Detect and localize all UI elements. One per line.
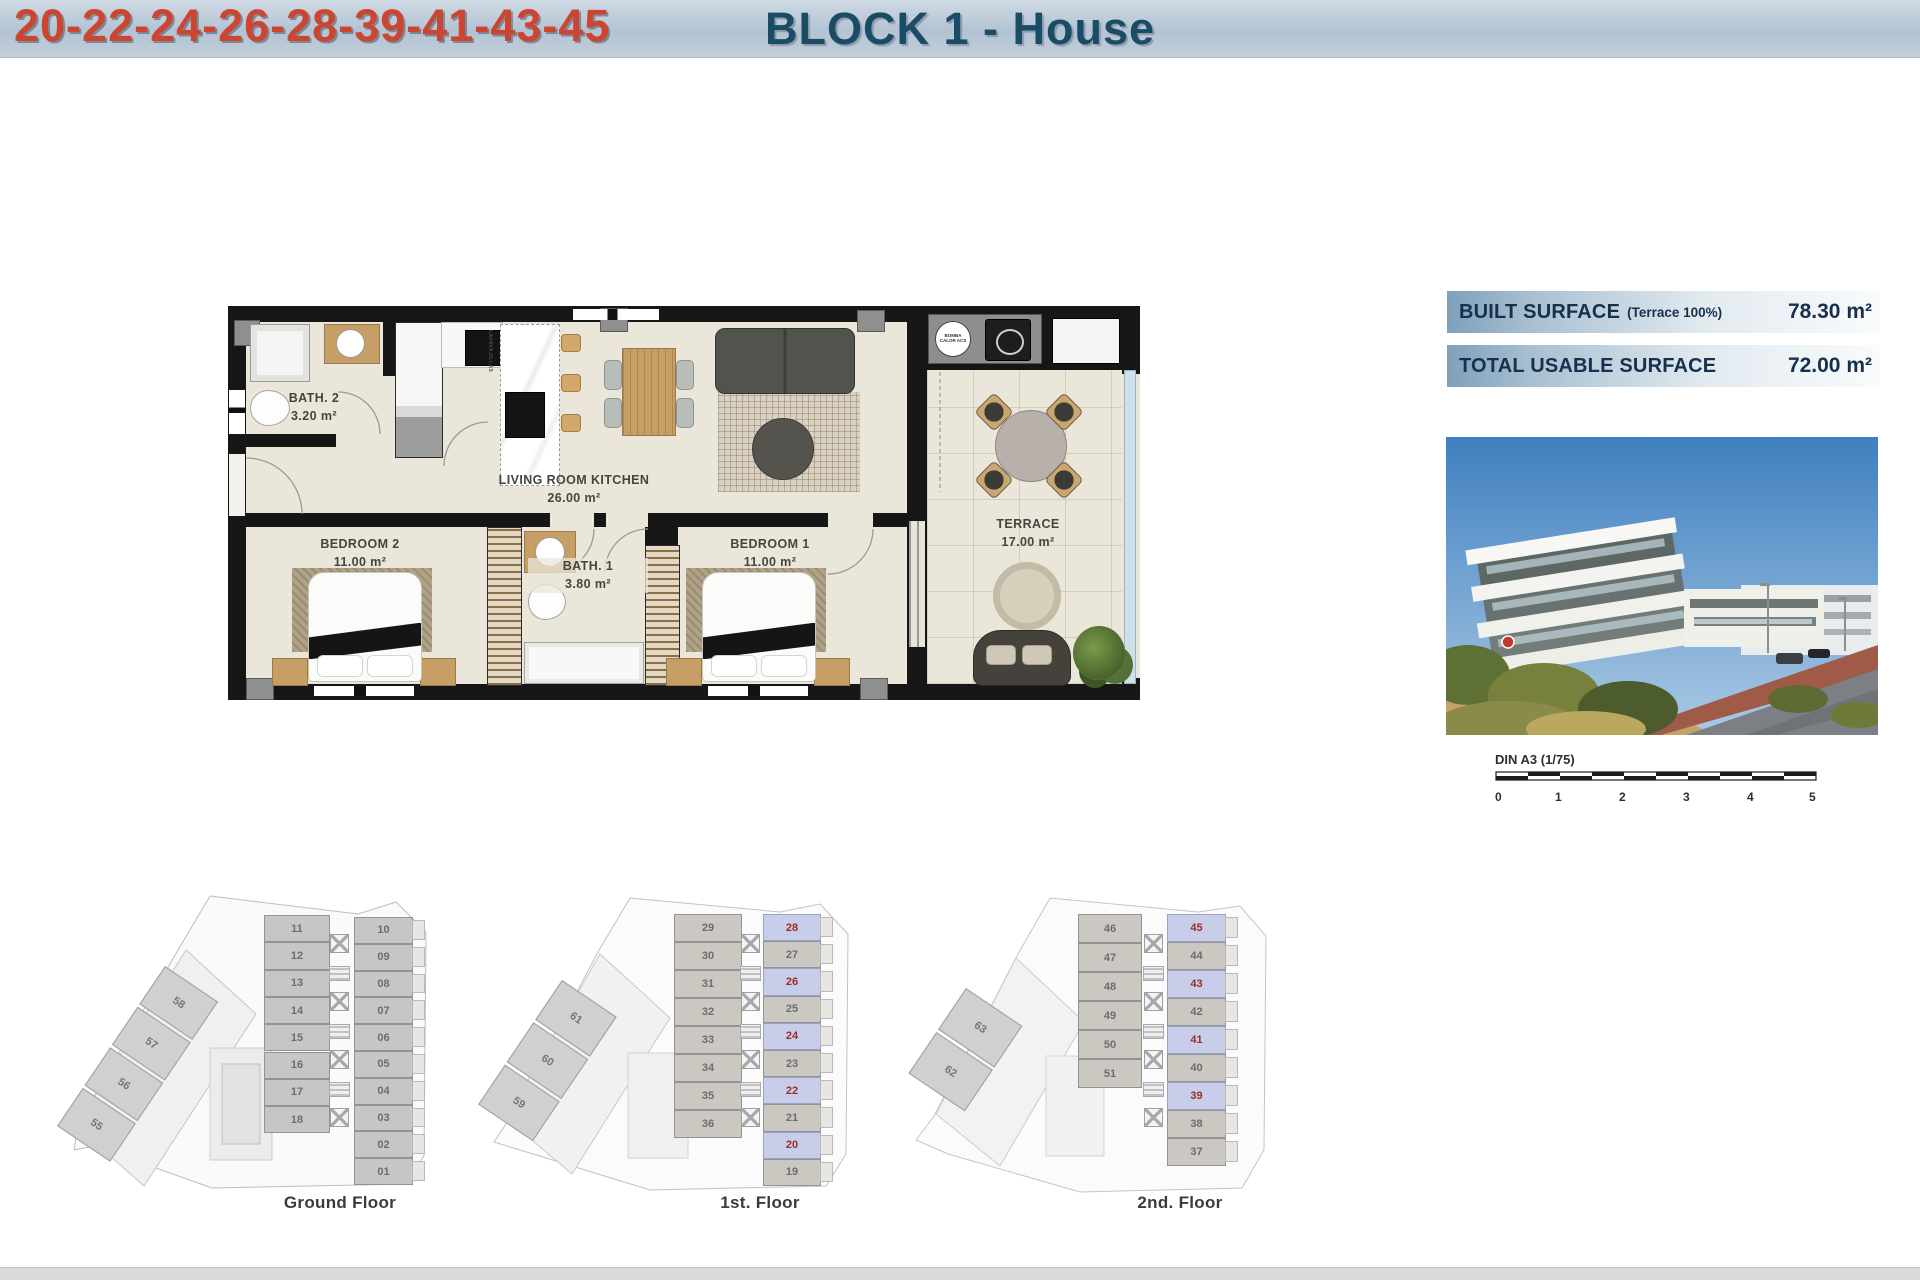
diagonal-units: 6362 — [907, 988, 1023, 1114]
elevator-icon — [1144, 1108, 1163, 1127]
balcony-notch — [820, 999, 833, 1019]
balcony-notch — [820, 917, 833, 937]
usable-surface-value: 72.00 m² — [1788, 354, 1880, 378]
page-title: BLOCK 1 - House20-22-24-26-28-39-41-43-4… — [765, 3, 1155, 55]
unit-01: 01 — [354, 1158, 413, 1185]
unit-20: 20 — [763, 1132, 821, 1159]
unit-33: 33 — [674, 1026, 742, 1054]
mini-plan-first-floor: 2930313233343536282726252423222120196160… — [480, 888, 870, 1223]
unit-29: 29 — [674, 914, 742, 942]
unit-31: 31 — [674, 970, 742, 998]
unit-41: 41 — [1167, 1026, 1226, 1054]
balcony-notch — [820, 1135, 833, 1155]
scale-ruler — [1495, 769, 1817, 785]
title-unit-numbers: 20-22-24-26-28-39-41-43-45 — [14, 0, 404, 335]
balcony-notch — [412, 1108, 425, 1128]
balcony-notch — [1225, 1113, 1238, 1134]
balcony-notch — [820, 1026, 833, 1046]
unit-19: 19 — [763, 1159, 821, 1186]
unit-cells: 2930313233343536282726252423222120196160… — [480, 888, 870, 1223]
room-area: 3.20 m² — [266, 408, 362, 426]
unit-43: 43 — [1167, 970, 1226, 998]
elevator-icon — [741, 992, 760, 1011]
tick: 0 — [1495, 790, 1502, 804]
unit-15: 15 — [264, 1024, 330, 1051]
elevator-icon — [741, 1108, 760, 1127]
room-name: BATH. 1 — [528, 558, 648, 576]
balcony-notch — [820, 1080, 833, 1100]
balcony-notch — [412, 1134, 425, 1154]
tick: 1 — [1555, 790, 1562, 804]
room-name: TERRACE — [958, 516, 1098, 534]
room-area: 11.00 m² — [285, 554, 435, 572]
room-label-bedroom2: BEDROOM 2 11.00 m² — [285, 536, 435, 571]
caption-second-floor: 2nd. Floor — [1070, 1193, 1290, 1213]
unit-11: 11 — [264, 915, 330, 942]
stairs-icon — [1143, 1082, 1164, 1097]
built-surface-row: BUILT SURFACE (Terrace 100%) 78.30 m² — [1447, 291, 1880, 333]
elevator-icon — [330, 934, 349, 953]
main-floor-plan: BOMBA CALOR ACS — [228, 306, 1140, 700]
footer-strip — [0, 1267, 1920, 1280]
built-surface-note: (Terrace 100%) — [1627, 305, 1722, 320]
balcony-notch — [1225, 973, 1238, 994]
balcony-notch — [412, 1027, 425, 1047]
room-label-terrace: TERRACE 17.00 m² — [958, 516, 1098, 551]
unit-07: 07 — [354, 997, 413, 1024]
unit-49: 49 — [1078, 1001, 1142, 1030]
balcony-notch — [1225, 1085, 1238, 1106]
built-surface-label: BUILT SURFACE — [1447, 301, 1620, 324]
unit-14: 14 — [264, 997, 330, 1024]
unit-35: 35 — [674, 1082, 742, 1110]
unit-13: 13 — [264, 970, 330, 997]
room-label-bath2: BATH. 2 3.20 m² — [266, 390, 362, 425]
room-area: 3.80 m² — [528, 576, 648, 594]
elevator-icon — [330, 1108, 349, 1127]
unit-46: 46 — [1078, 914, 1142, 943]
unit-48: 48 — [1078, 972, 1142, 1001]
unit-27: 27 — [763, 941, 821, 968]
unit-10: 10 — [354, 917, 413, 944]
balcony-notch — [412, 1000, 425, 1020]
usable-surface-label: TOTAL USABLE SURFACE — [1447, 355, 1716, 378]
unit-50: 50 — [1078, 1030, 1142, 1059]
unit-34: 34 — [674, 1054, 742, 1082]
room-name: BEDROOM 2 — [285, 536, 435, 554]
elevator-icon — [330, 1050, 349, 1069]
room-name: LIVING ROOM KITCHEN — [484, 472, 664, 490]
balcony-notch — [820, 944, 833, 964]
caption-ground-floor: Ground Floor — [230, 1193, 450, 1213]
balcony-notch — [1225, 945, 1238, 966]
unit-25: 25 — [763, 996, 821, 1023]
stairs-icon — [740, 1024, 761, 1039]
scale-label: DIN A3 (1/75) — [1495, 752, 1817, 767]
stairs-icon — [329, 1082, 350, 1097]
tick: 3 — [1683, 790, 1690, 804]
tick: 2 — [1619, 790, 1626, 804]
stairs-icon — [740, 966, 761, 981]
unit-30: 30 — [674, 942, 742, 970]
unit-23: 23 — [763, 1050, 821, 1077]
unit-24: 24 — [763, 1023, 821, 1050]
unit-06: 06 — [354, 1024, 413, 1051]
balcony-notch — [820, 1107, 833, 1127]
tick: 5 — [1809, 790, 1816, 804]
unit-26: 26 — [763, 968, 821, 995]
unit-38: 38 — [1167, 1110, 1226, 1138]
balcony-notch — [412, 1054, 425, 1074]
unit-51: 51 — [1078, 1059, 1142, 1088]
balcony-notch — [1225, 1057, 1238, 1078]
balcony-notch — [1225, 917, 1238, 938]
room-label-bedroom1: BEDROOM 1 11.00 m² — [695, 536, 845, 571]
balcony-notch — [412, 1161, 425, 1181]
balcony-notch — [412, 920, 425, 940]
balcony-notch — [820, 1053, 833, 1073]
unit-17: 17 — [264, 1079, 330, 1106]
unit-cells: 1112131415161718100908070605040302015857… — [60, 888, 450, 1223]
diagonal-units: 58575655 — [55, 966, 218, 1164]
room-label-living: LIVING ROOM KITCHEN 26.00 m² — [484, 472, 664, 507]
unit-18: 18 — [264, 1106, 330, 1133]
balcony-notch — [412, 1081, 425, 1101]
unit-45: 45 — [1167, 914, 1226, 942]
unit-39: 39 — [1167, 1082, 1226, 1110]
diagonal-units: 616059 — [476, 980, 616, 1144]
unit-42: 42 — [1167, 998, 1226, 1026]
unit-44: 44 — [1167, 942, 1226, 970]
elevator-icon — [1144, 934, 1163, 953]
balcony-notch — [412, 947, 425, 967]
unit-04: 04 — [354, 1078, 413, 1105]
usable-surface-row: TOTAL USABLE SURFACE 72.00 m² — [1447, 345, 1880, 387]
stairs-icon — [1143, 1024, 1164, 1039]
unit-16: 16 — [264, 1052, 330, 1079]
stairs-icon — [740, 1082, 761, 1097]
room-area: 26.00 m² — [484, 490, 664, 508]
room-area: 11.00 m² — [695, 554, 845, 572]
elevator-icon — [330, 992, 349, 1011]
balcony-notch — [1225, 1001, 1238, 1022]
stairs-icon — [1143, 966, 1164, 981]
unit-12: 12 — [264, 942, 330, 969]
room-name: BEDROOM 1 — [695, 536, 845, 554]
tick: 4 — [1747, 790, 1754, 804]
unit-05: 05 — [354, 1051, 413, 1078]
unit-47: 47 — [1078, 943, 1142, 972]
balcony-notch — [1225, 1029, 1238, 1050]
scale-ticks: 0 1 2 3 4 5 — [1495, 790, 1817, 804]
unit-40: 40 — [1167, 1054, 1226, 1082]
balcony-notch — [820, 971, 833, 991]
elevator-icon — [1144, 992, 1163, 1011]
room-name: BATH. 2 — [266, 390, 362, 408]
stairs-icon — [329, 1024, 350, 1039]
unit-22: 22 — [763, 1077, 821, 1104]
unit-cells: 4647484950514544434241403938376362 — [900, 888, 1290, 1223]
mini-plan-second-floor: 4647484950514544434241403938376362 2nd. … — [900, 888, 1290, 1223]
unit-03: 03 — [354, 1105, 413, 1132]
built-surface-value: 78.30 m² — [1788, 300, 1880, 324]
elevator-icon — [741, 1050, 760, 1069]
unit-21: 21 — [763, 1104, 821, 1131]
balcony-notch — [820, 1162, 833, 1182]
header-bar: BLOCK 1 - House20-22-24-26-28-39-41-43-4… — [0, 0, 1920, 58]
unit-32: 32 — [674, 998, 742, 1026]
unit-08: 08 — [354, 971, 413, 998]
elevator-icon — [741, 934, 760, 953]
balcony-notch — [412, 974, 425, 994]
unit-02: 02 — [354, 1131, 413, 1158]
unit-09: 09 — [354, 944, 413, 971]
caption-first-floor: 1st. Floor — [650, 1193, 870, 1213]
unit-37: 37 — [1167, 1138, 1226, 1166]
balcony-notch — [1225, 1141, 1238, 1162]
unit-36: 36 — [674, 1110, 742, 1138]
scale-bar: DIN A3 (1/75) 0 1 2 3 4 5 — [1495, 752, 1817, 804]
room-label-bath1: BATH. 1 3.80 m² — [528, 558, 648, 593]
building-photo — [1446, 437, 1878, 735]
unit-28: 28 — [763, 914, 821, 941]
room-area: 17.00 m² — [958, 534, 1098, 552]
title-block-text: BLOCK 1 - House — [765, 3, 1155, 54]
stairs-icon — [329, 966, 350, 981]
elevator-icon — [1144, 1050, 1163, 1069]
door-swing-arcs — [228, 306, 1140, 700]
brochure-page: BLOCK 1 - House20-22-24-26-28-39-41-43-4… — [0, 0, 1920, 1280]
mini-plan-ground-floor: 1112131415161718100908070605040302015857… — [60, 888, 450, 1223]
